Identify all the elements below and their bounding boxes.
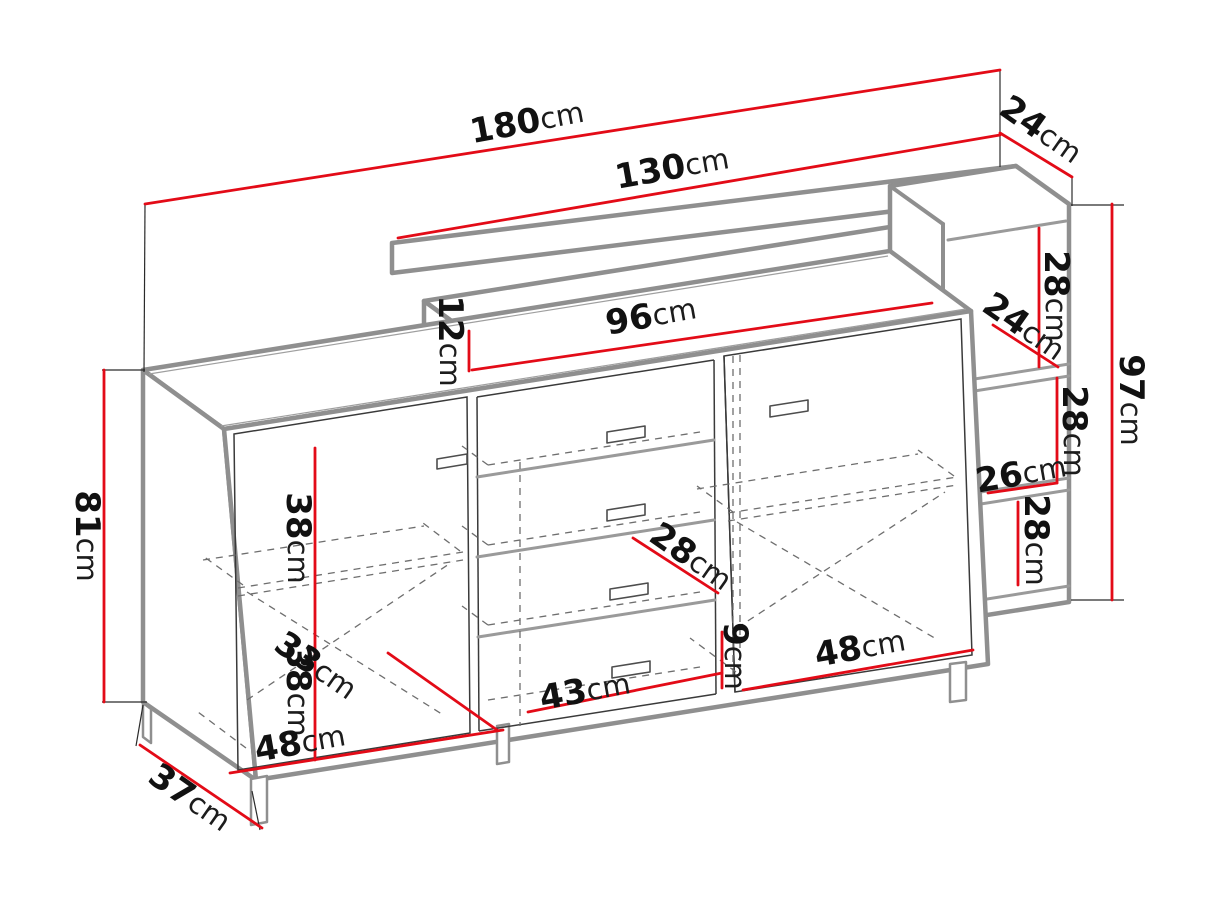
dim-label-column-bottom-28: 28cm — [1016, 494, 1056, 586]
dim-label-cabinet-depth-37: 37cm — [141, 755, 239, 840]
dim-label-shelf-width-130: 130cm — [612, 138, 732, 197]
furniture-dimension-diagram: 180cm 24cm 130cm 96cm 12cm 28cm 24cm 97c… — [0, 0, 1214, 911]
dim-label-shelf-height-12: 12cm — [430, 295, 470, 387]
dim-label-base-height-9: 9cm — [715, 622, 755, 690]
cabinet-foot-front-right — [950, 662, 966, 702]
ext-180-left — [144, 204, 145, 372]
dim-label-top-depth-24: 24cm — [992, 87, 1090, 172]
cabinet-foot-back-left — [143, 703, 151, 743]
dim-label-upper-compartment-38: 38cm — [278, 492, 318, 584]
dim-label-column-height-97: 97cm — [1111, 354, 1151, 446]
dim-label-cabinet-height-81: 81cm — [67, 490, 107, 582]
diagram-canvas: 180cm 24cm 130cm 96cm 12cm 28cm 24cm 97c… — [0, 0, 1214, 911]
